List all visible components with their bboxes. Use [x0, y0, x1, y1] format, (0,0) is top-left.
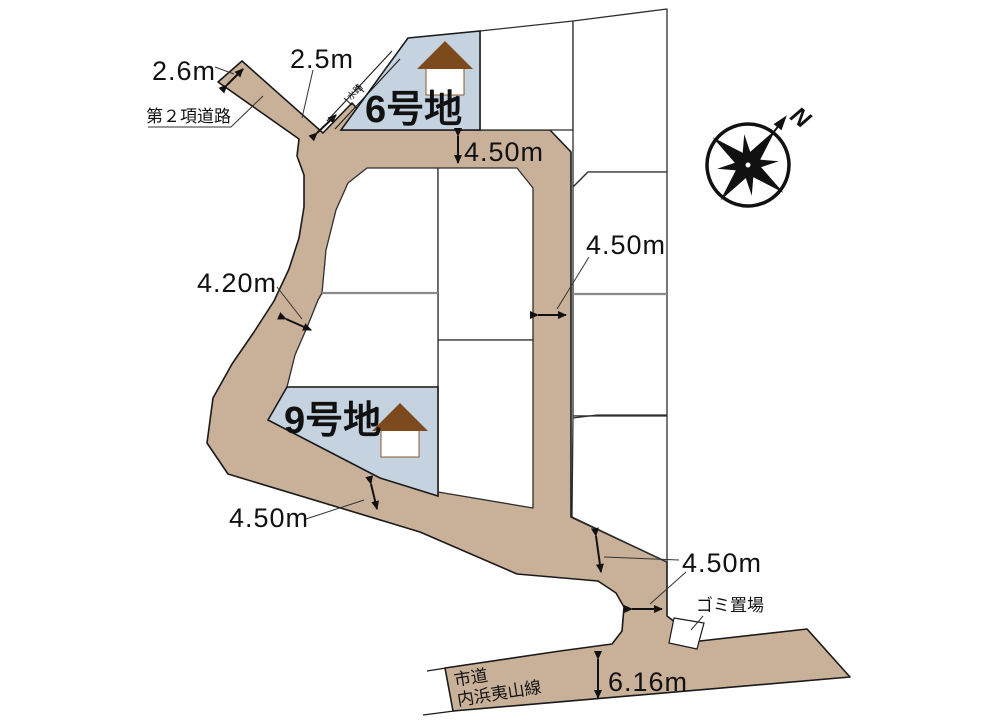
dim-east-4-50m: 4.50m — [586, 230, 666, 260]
dim-north-4-50m: 4.50m — [464, 137, 544, 167]
dim-4-20m: 4.20m — [197, 268, 277, 298]
plot-plan-canvas: 6号地 9号地 水路 2.6m 2.5m 4.50m 4. — [0, 0, 1000, 721]
plot-plan-svg: 6号地 9号地 水路 2.6m 2.5m 4.50m 4. — [0, 0, 1000, 721]
city-road-edge-extension-bottom — [423, 711, 454, 715]
lot-northeast — [573, 9, 667, 187]
dim-south-4-50m: 4.50m — [229, 503, 309, 533]
dim-2-6m: 2.6m — [152, 56, 216, 86]
lot-center-northeast — [438, 168, 533, 340]
leader-2-5m — [302, 70, 313, 118]
dim-merge-4-50m: 4.50m — [682, 548, 762, 578]
lot-center-east — [438, 340, 533, 508]
garbage-label: ゴミ置場 — [696, 595, 764, 615]
compass-icon: N — [685, 72, 835, 228]
lot-6-label: 6号地 — [365, 89, 462, 131]
compass-north-label: N — [785, 102, 816, 134]
dim-6-16m: 6.16m — [608, 667, 688, 697]
lot-9-label: 9号地 — [284, 400, 381, 442]
dim-2-5m: 2.5m — [290, 44, 354, 74]
lot-east-3 — [573, 294, 667, 416]
city-road-edge-extension-top — [427, 668, 446, 671]
garbage-station-shape — [669, 618, 704, 649]
lot-north-middle — [480, 21, 573, 130]
setback-road-label: 第２項道路 — [146, 107, 231, 126]
